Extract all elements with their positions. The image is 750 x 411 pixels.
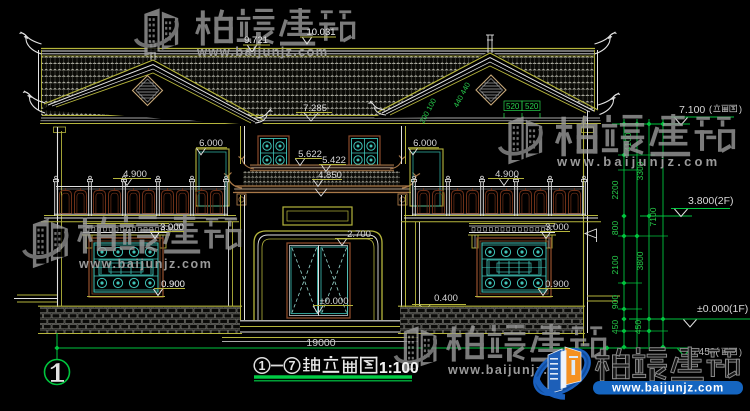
svg-text:1:100: 1:100	[379, 360, 419, 377]
svg-text:10.031: 10.031	[306, 27, 335, 38]
svg-text:): )	[739, 347, 742, 357]
svg-text:3800: 3800	[635, 251, 645, 270]
svg-text:900: 900	[610, 295, 620, 309]
svg-text:800: 800	[610, 221, 620, 235]
svg-text:520: 520	[525, 102, 539, 111]
svg-text:450: 450	[633, 320, 643, 334]
svg-text:2100: 2100	[610, 255, 620, 274]
svg-text:www.baijunjz.com: www.baijunjz.com	[611, 383, 724, 395]
svg-text:): )	[739, 104, 742, 114]
svg-text:3.800(2F): 3.800(2F)	[688, 195, 734, 207]
svg-text:(: (	[709, 104, 712, 114]
svg-text:0.400: 0.400	[434, 293, 458, 304]
svg-text:www.baijunjz.com: www.baijunjz.com	[196, 44, 328, 59]
svg-text:www.baijunjz.com: www.baijunjz.com	[556, 154, 720, 169]
svg-text:1: 1	[259, 359, 266, 373]
svg-text:520: 520	[506, 102, 520, 111]
svg-text:19000: 19000	[306, 337, 335, 349]
svg-text:2200: 2200	[610, 180, 620, 199]
svg-text:9.721: 9.721	[244, 35, 268, 46]
svg-text:7: 7	[289, 359, 296, 373]
svg-text:450: 450	[610, 320, 620, 334]
svg-text:7100: 7100	[648, 207, 658, 226]
svg-text:±0.000(1F): ±0.000(1F)	[697, 303, 748, 315]
svg-text:www.baijunjz.com: www.baijunjz.com	[78, 257, 212, 271]
svg-text:7.100: 7.100	[679, 104, 705, 116]
